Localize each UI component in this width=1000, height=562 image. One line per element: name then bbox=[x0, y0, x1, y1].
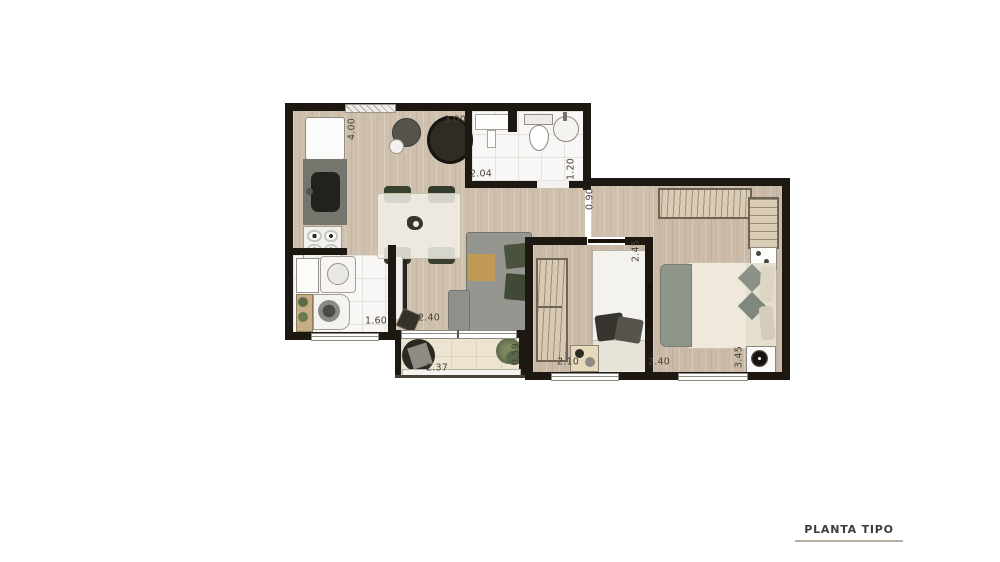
side-table-plate bbox=[389, 139, 404, 154]
single-bed-blanket bbox=[593, 340, 645, 371]
plant-icon bbox=[298, 297, 308, 307]
wall-bedroom2-left bbox=[525, 245, 533, 380]
wall-balcony-left bbox=[395, 338, 401, 378]
dresser-knob bbox=[756, 251, 761, 256]
bathroom-faucet bbox=[563, 112, 567, 121]
wardrobe-shelf-line bbox=[538, 306, 562, 308]
bed-pillow bbox=[614, 316, 644, 344]
kitchen-sink bbox=[311, 172, 340, 212]
shower-drain bbox=[487, 130, 496, 148]
window-top bbox=[345, 104, 396, 113]
balcony-sliding-door bbox=[401, 330, 517, 339]
dimension-balcony-depth: 0.59 bbox=[511, 343, 522, 365]
dimension-bedroom2-width: 2.10 bbox=[557, 357, 579, 368]
laundry-sink-basin bbox=[327, 263, 349, 285]
wall-master-right bbox=[782, 178, 790, 380]
window-master bbox=[678, 373, 748, 381]
master-door-leaf bbox=[647, 283, 652, 329]
toilet-tank bbox=[524, 114, 553, 125]
dimension-hall-width: 0.90 bbox=[585, 188, 596, 210]
dimension-master-depth: 3.45 bbox=[734, 346, 745, 368]
bed-pillow bbox=[759, 266, 775, 303]
wall-master-top bbox=[583, 178, 790, 186]
window-laundry bbox=[311, 333, 379, 341]
hall-floor bbox=[591, 186, 653, 237]
shower-niche bbox=[475, 114, 512, 130]
dimension-living-width: 3.00 bbox=[444, 115, 466, 126]
dimension-laundry-width: 1.60 bbox=[365, 316, 387, 327]
bed-pillow bbox=[759, 305, 776, 340]
dimension-bathroom-width: 2.04 bbox=[470, 169, 492, 180]
fridge bbox=[305, 117, 345, 160]
master-wardrobe bbox=[658, 188, 752, 219]
shower-partition-wall bbox=[508, 111, 517, 132]
dimension-bathroom-depth: 1.20 bbox=[566, 158, 577, 180]
dimension-living-length: 2.40 bbox=[418, 313, 440, 324]
floor-plan: 4.00 3.00 2.04 1.20 0.90 2.45 1.60 2.40 … bbox=[0, 0, 1000, 562]
bathroom-door-threshold bbox=[537, 181, 569, 188]
wall-left bbox=[285, 103, 293, 340]
tv-screen bbox=[403, 260, 407, 315]
wall-bathroom-right bbox=[583, 103, 591, 190]
sofa-throw bbox=[468, 254, 495, 281]
double-bed-blanket bbox=[660, 264, 692, 347]
wall-bedroom2-top bbox=[525, 237, 587, 245]
nightstand-speaker bbox=[751, 350, 768, 367]
dimension-master-width: 2.40 bbox=[648, 357, 670, 368]
window-bedroom2 bbox=[551, 373, 619, 381]
burner-icon bbox=[307, 230, 322, 242]
wall-bathroom-bottom bbox=[465, 181, 537, 188]
sofa-chaise bbox=[448, 290, 470, 331]
dimension-bedroom2-depth: 2.45 bbox=[631, 240, 642, 262]
burner-icon bbox=[324, 230, 339, 242]
wardrobe bbox=[536, 258, 568, 362]
washer-door bbox=[318, 300, 340, 322]
master-wardrobe-side bbox=[748, 197, 779, 249]
plant-icon bbox=[298, 312, 308, 322]
nightstand-item bbox=[585, 357, 595, 367]
title-underline bbox=[795, 540, 903, 542]
plan-title: PLANTA TIPO bbox=[795, 523, 903, 536]
wall-kitchen-laundry bbox=[285, 248, 347, 255]
sliding-door-divider bbox=[457, 330, 459, 338]
wall-top bbox=[285, 103, 591, 111]
dimension-balcony-width: 2.37 bbox=[426, 363, 448, 374]
wall-laundry-right bbox=[388, 245, 396, 340]
bedroom2-door-leaf bbox=[588, 239, 625, 243]
balcony-rail bbox=[395, 375, 525, 378]
dimension-kitchen-depth: 4.00 bbox=[347, 118, 358, 140]
kitchen-faucet bbox=[306, 188, 313, 195]
water-heater bbox=[296, 258, 319, 293]
centerpiece-detail bbox=[413, 221, 419, 227]
